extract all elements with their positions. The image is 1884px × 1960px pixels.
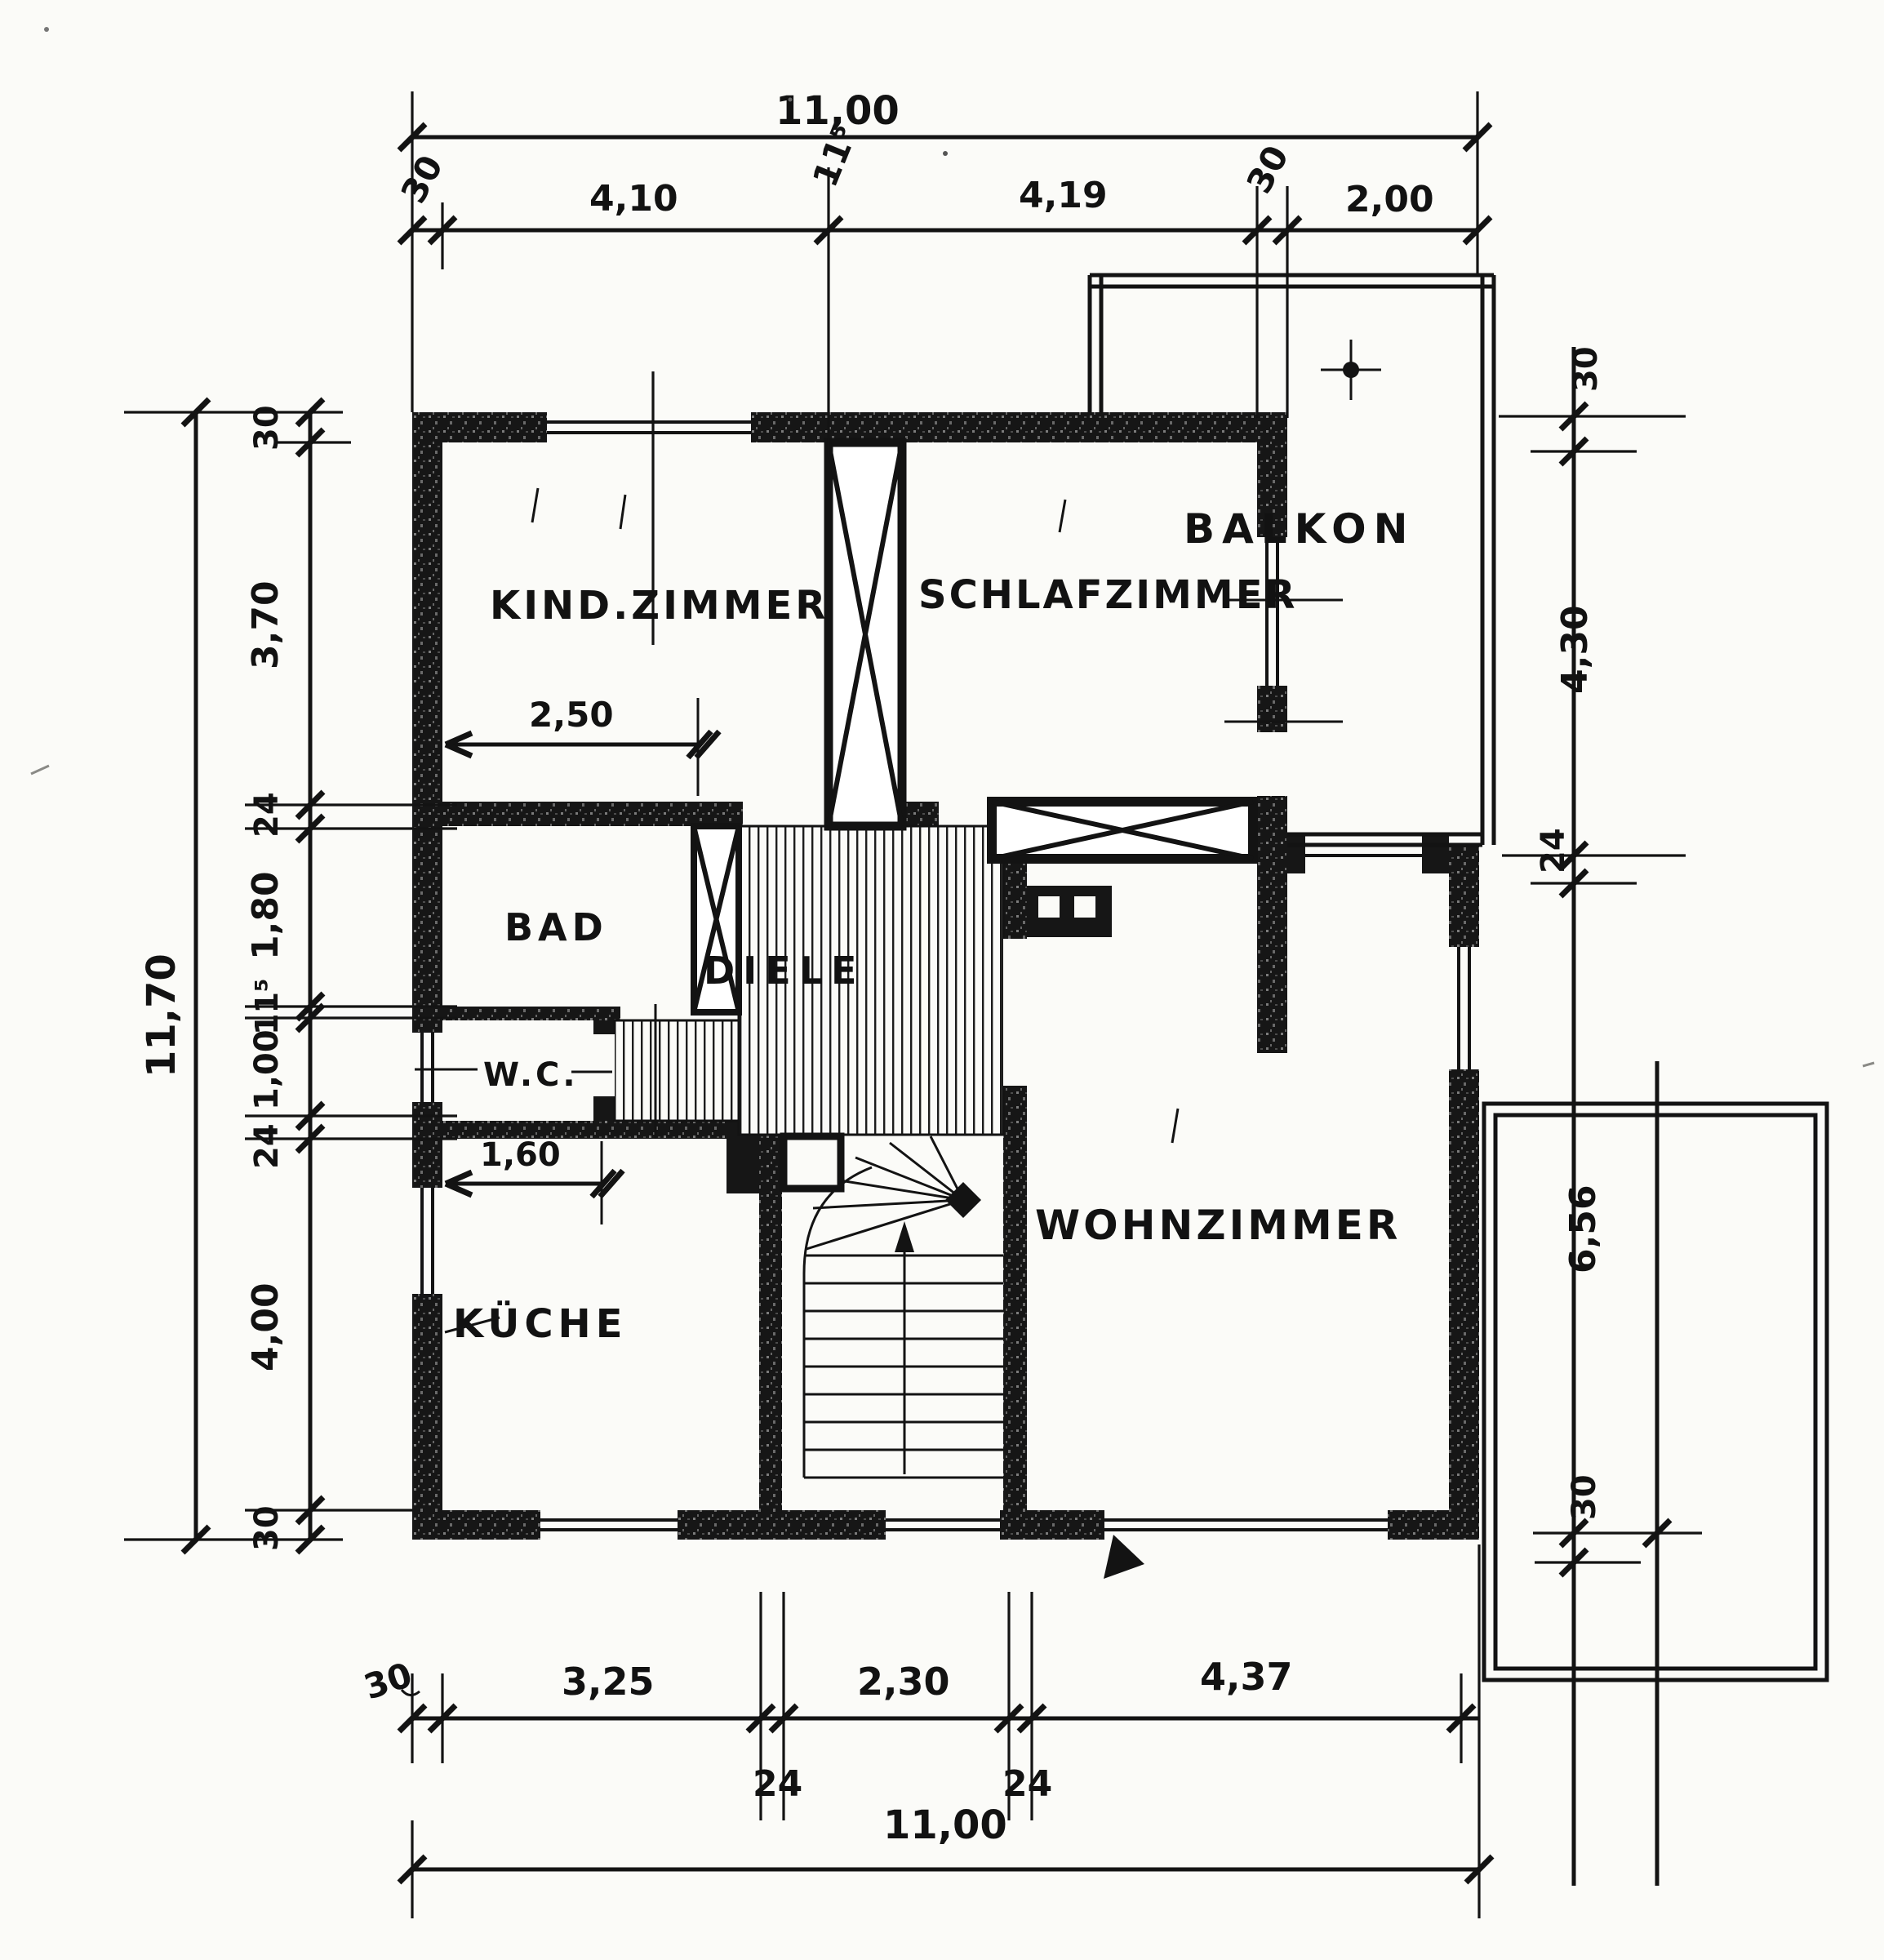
room-label-kind-zimmer: KIND.ZIMMER <box>490 583 829 629</box>
dim-bottom-stair: 2,30 <box>857 1660 950 1704</box>
balcony-parapet-top <box>1090 275 1494 287</box>
door-diele-wohnzimmer <box>1003 939 1027 1086</box>
scanned-floor-plan-page: 11,00 30 4,10 11⁵ 4,19 30 2,00 11,70 30 … <box>0 0 1884 1960</box>
balcony-drain-cross-icon <box>1321 340 1381 400</box>
wall-right-wohnzimmer <box>1449 845 1479 1510</box>
room-label-wohnzimmer: WOHNZIMMER <box>1035 1202 1401 1249</box>
diele-hatch-corridor <box>615 1020 739 1121</box>
staircase <box>784 1136 1003 1478</box>
balcony-parapet-right <box>1482 275 1494 845</box>
dim-terrace-30: 30 <box>1566 1474 1603 1520</box>
dim-bottom-overall: 11,00 <box>883 1802 1007 1848</box>
ticks-right-chain <box>1561 403 1670 1576</box>
room-label-wc: W.C. <box>483 1056 579 1094</box>
stair-left-stringer <box>804 1167 872 1478</box>
dim-top-balkon: 2,00 <box>1345 179 1434 220</box>
dim-left-overall: 11,70 <box>139 953 184 1078</box>
dim-terrace-length: 6,56 <box>1562 1184 1604 1273</box>
dim-bottom-24a: 24 <box>753 1763 802 1805</box>
balcony <box>1090 275 1494 845</box>
dim-bottom-kueche: 3,25 <box>562 1660 655 1704</box>
window-wohnzimmer-bottom <box>1104 1510 1388 1540</box>
extension-lines-interior <box>602 698 698 1224</box>
dim-kueche-160: 1,60 <box>480 1136 561 1174</box>
door-wc <box>593 1034 615 1096</box>
wall-wc-kueche <box>412 1121 739 1139</box>
dim-left-kind: 3,70 <box>245 580 287 669</box>
dim-left-kueche: 4,00 <box>245 1282 287 1371</box>
wall-kueche-stair <box>759 1135 782 1510</box>
chimney-flue-left <box>1038 896 1060 918</box>
wall-top <box>412 412 1287 442</box>
dim-top-schlaf: 4,19 <box>1019 175 1108 216</box>
dim-left-wc: 1,00 <box>248 1029 286 1110</box>
dim-left-24b: 24 <box>248 1123 286 1169</box>
door-schlafzimmer-balkon <box>1257 732 1287 796</box>
room-label-bad: BAD <box>504 905 608 949</box>
dim-left-wall-top: 30 <box>248 405 286 451</box>
extension-lines-top <box>412 91 1477 645</box>
dim-top-kind: 4,10 <box>589 178 678 220</box>
dim-left-wall-bottom: 30 <box>248 1505 286 1551</box>
dim-right-24: 24 <box>1535 828 1572 873</box>
stair-cellar-door-frame <box>784 1136 841 1189</box>
floor-plan-drawing: 11,00 30 4,10 11⁵ 4,19 30 2,00 11,70 30 … <box>0 0 1884 1960</box>
wall-stub-wohnzimmer-nook <box>1257 826 1287 1053</box>
dim-right-balkon: 4,30 <box>1554 605 1596 694</box>
stair-newel-post <box>945 1182 981 1218</box>
dim-bottom-wall-left: 30 <box>359 1655 417 1708</box>
window-kindzimmer-top <box>547 412 751 442</box>
dim-kind-250: 2,50 <box>529 695 614 735</box>
entrance-arrow-icon <box>1104 1535 1144 1579</box>
dim-bottom-wohn: 4,37 <box>1200 1655 1293 1699</box>
dim-bottom-24b: 24 <box>1002 1763 1052 1805</box>
wall-post-window-band-left <box>1287 834 1305 873</box>
dim-left-115: 11⁵ <box>249 978 285 1035</box>
dim-left-24a: 24 <box>248 792 286 838</box>
stair-direction-arrow <box>895 1221 914 1252</box>
dim-left-bad: 1,80 <box>245 871 287 960</box>
window-kueche-left <box>412 1188 442 1294</box>
dim-top-wall-left: 30 <box>393 149 451 210</box>
chimney-flue-right <box>1074 896 1095 918</box>
dim-right-parapet: 30 <box>1567 346 1605 392</box>
window-wc-left <box>412 1033 442 1102</box>
room-label-diele: DIELE <box>704 949 864 993</box>
extension-lines-right <box>1499 416 1702 1562</box>
entry-door-bottom <box>886 1510 1000 1540</box>
room-label-schlafzimmer: SCHLAFZIMMER <box>918 572 1297 618</box>
room-label-balkon: BALKON <box>1184 505 1415 553</box>
wall-schlafzimmer-bottom-stub <box>902 802 939 826</box>
extension-lines-bottom <box>412 1544 1479 1918</box>
window-wohnzimmer-right <box>1449 947 1479 1069</box>
wall-post-window-band-right <box>1422 834 1449 873</box>
window-kueche-bottom <box>540 1510 678 1540</box>
balcony-parapet-left <box>1090 275 1101 412</box>
wall-left <box>412 442 442 1540</box>
wall-kindzimmer-bad <box>412 802 743 826</box>
